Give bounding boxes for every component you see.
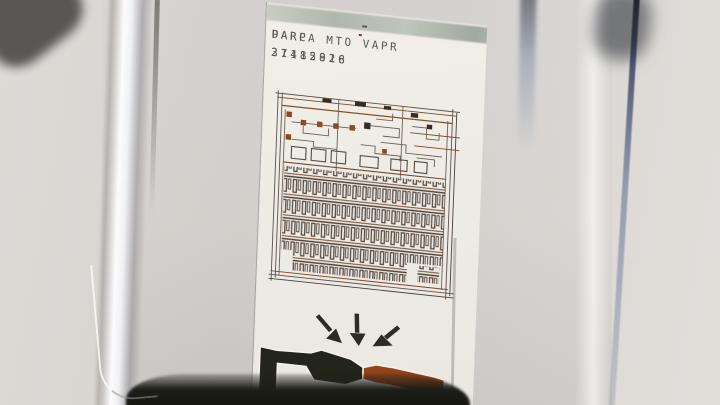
block-right-highlight [576, 0, 610, 405]
manufacturer-label: PARC [272, 28, 309, 45]
photo-scene: DARPA MTO VAPR PARC 27182818 31415926 [0, 0, 720, 405]
block-reflection-streak [518, 0, 537, 151]
chip-circuit-pattern [268, 87, 461, 305]
block-right-edge [608, 0, 640, 405]
red-speck [359, 34, 362, 36]
foreground-object-blur [0, 0, 94, 79]
arrow-down-left-icon [373, 324, 399, 349]
arrow-down-icon [349, 313, 366, 347]
dust-speck [362, 25, 367, 28]
serial-number-pi: 31415926 [271, 46, 348, 67]
transistor-array-rows [281, 166, 446, 287]
dark-base [126, 374, 470, 405]
arrow-down-right-icon [317, 315, 343, 343]
